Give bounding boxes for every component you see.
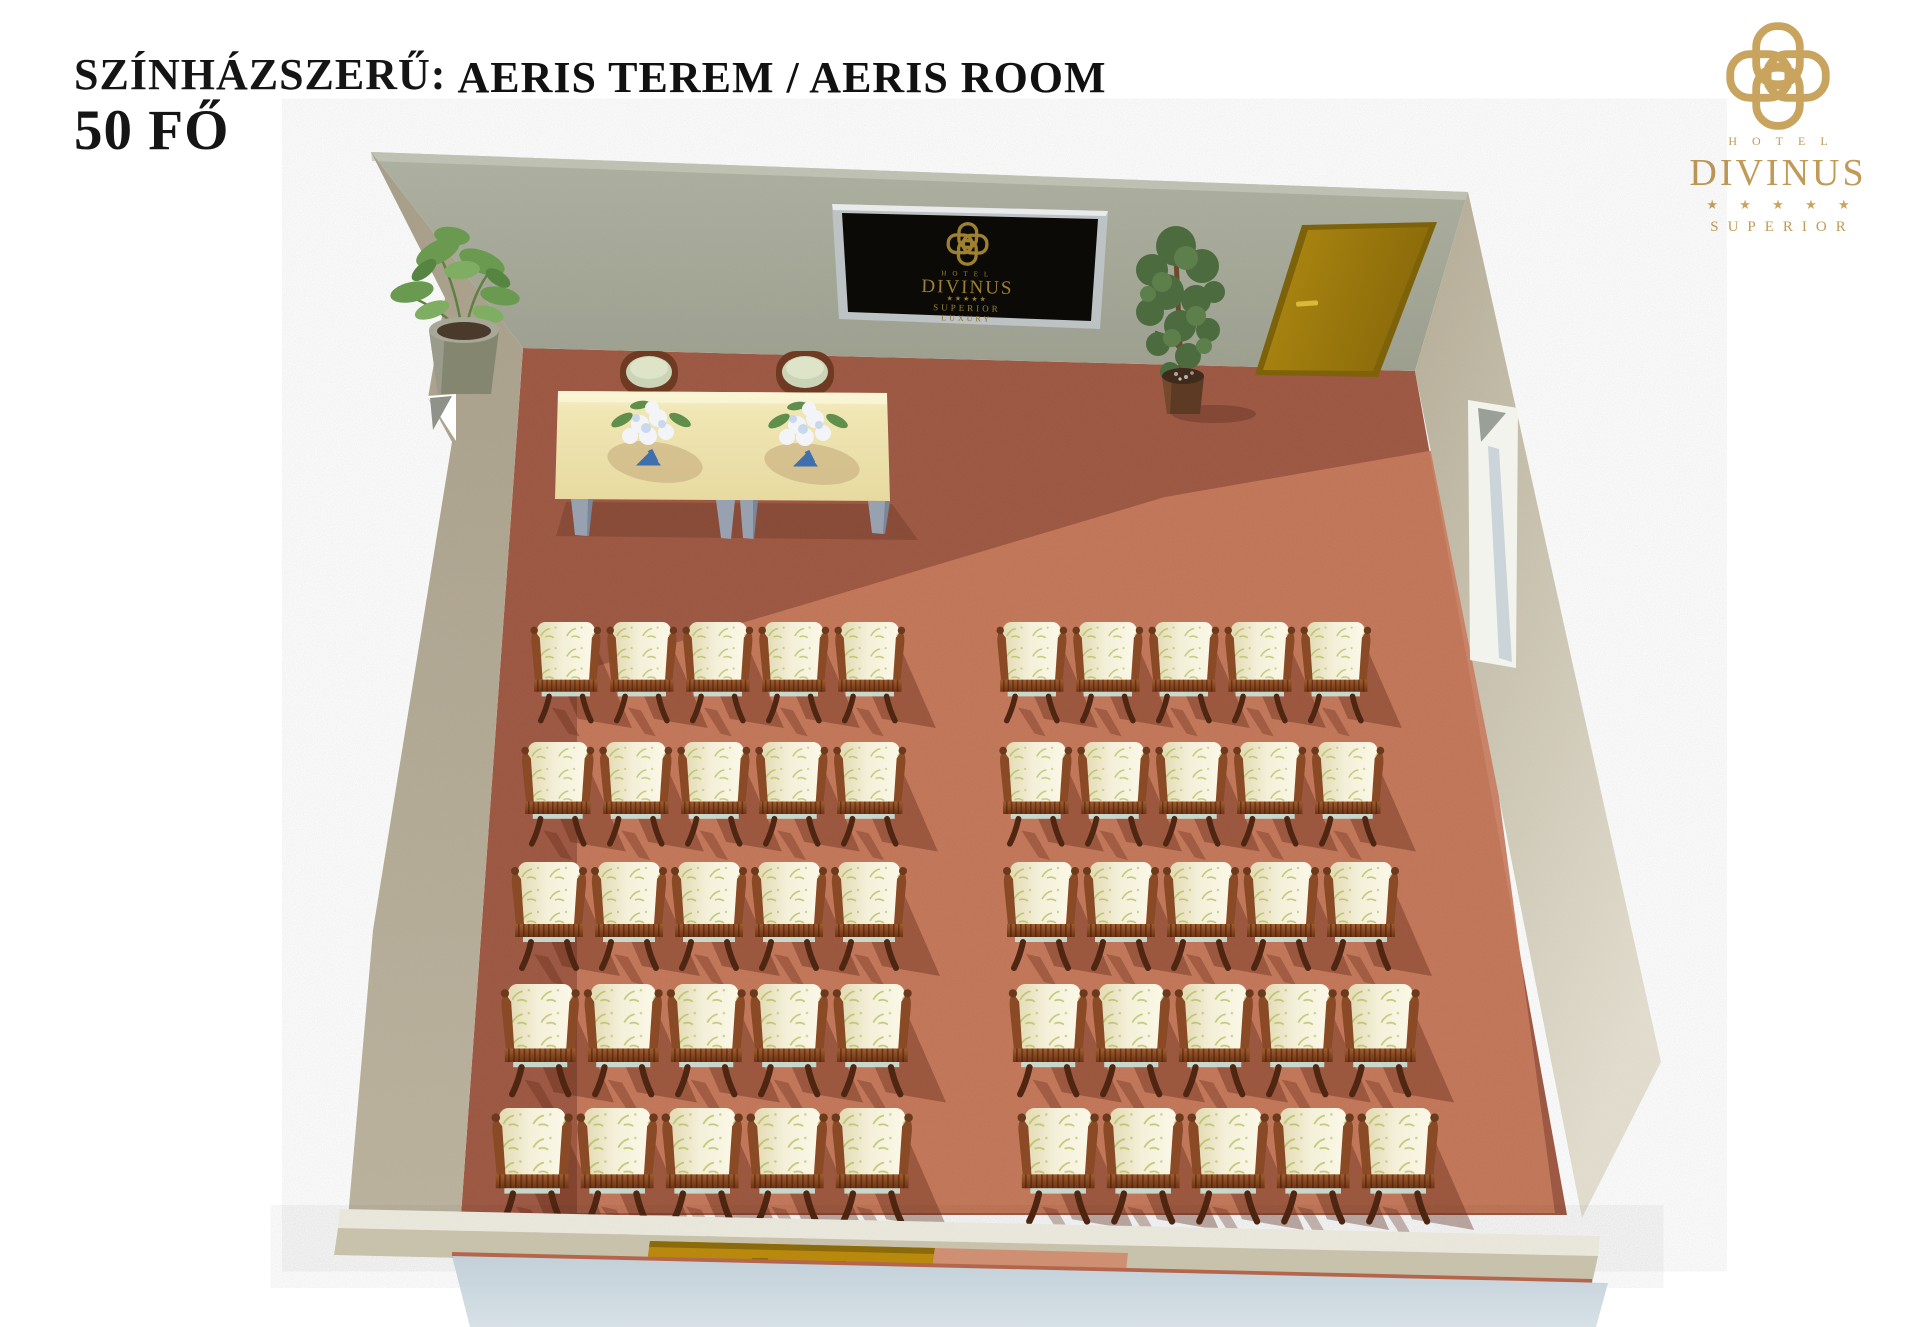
right-wall-gap [1468,400,1518,668]
svg-text:LUXURY: LUXURY [941,313,992,323]
presidium-chair [776,351,834,395]
tv-screen: HOTEL DIVINUS ★★★★★ SUPERIOR LUXURY [832,204,1108,329]
svg-text:SUPERIOR: SUPERIOR [933,302,1001,314]
head-table [555,391,890,501]
presidium-chair [620,351,678,395]
room-3d-render: HOTEL DIVINUS ★★★★★ SUPERIOR LUXURY [0,0,1920,1327]
tree-pot [1162,368,1204,414]
plant-pot [429,317,499,394]
floorplan-page: SZÍNHÁZSZERŰ: 50 FŐ AERIS TEREM / AERIS … [0,0,1920,1327]
